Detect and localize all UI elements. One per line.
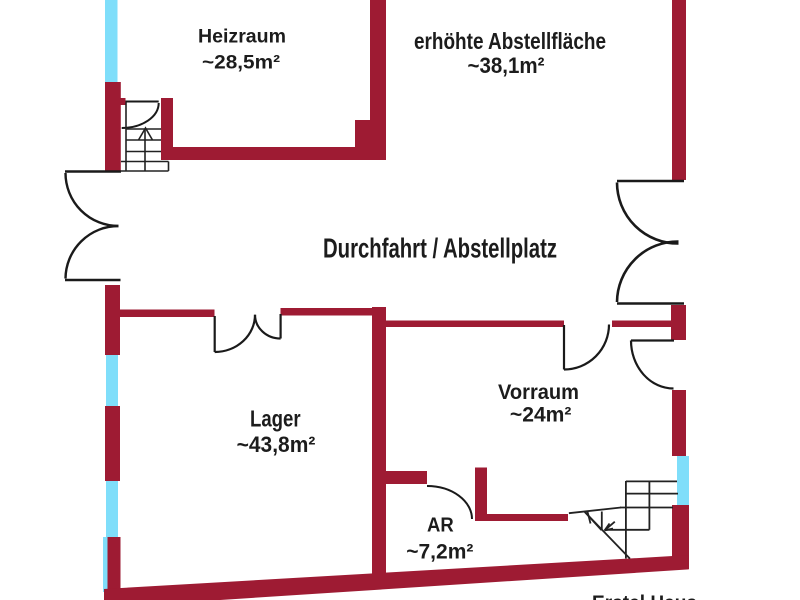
svg-text:~7,2m²: ~7,2m² [406,541,473,564]
svg-text:~28,5m²: ~28,5m² [202,53,280,74]
svg-text:~24m²: ~24m² [510,404,572,427]
svg-text:Heizraum: Heizraum [198,26,286,48]
svg-text:~43,8m²: ~43,8m² [237,432,316,457]
svg-text:Durchfahrt / Abstellplatz: Durchfahrt / Abstellplatz [323,232,557,263]
svg-text:erhöhte Abstellfläche: erhöhte Abstellfläche [414,28,606,54]
svg-text:~38,1m²: ~38,1m² [468,53,545,78]
svg-text:AR: AR [427,514,454,537]
svg-text:Lager: Lager [250,405,301,431]
svg-text:Vorraum: Vorraum [498,380,579,404]
svg-text:Erstel Haus: Erstel Haus [592,593,697,600]
